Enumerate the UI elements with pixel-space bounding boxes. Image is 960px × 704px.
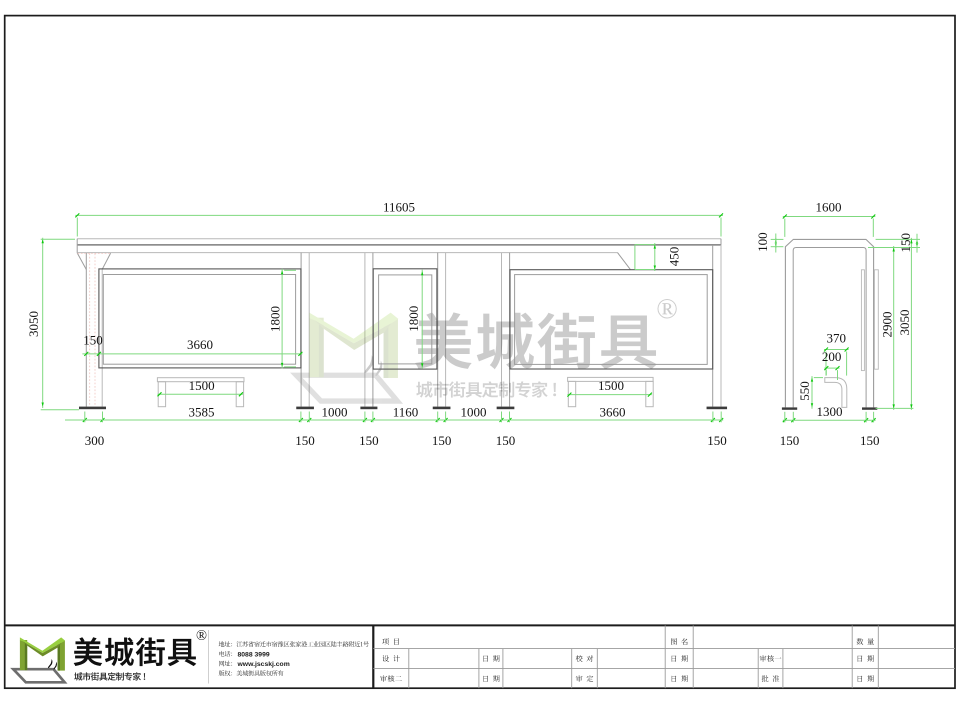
svg-text:450: 450 [667,247,682,267]
svg-text:150: 150 [496,433,516,448]
svg-text:11605: 11605 [383,200,415,215]
svg-text:1300: 1300 [817,404,843,419]
svg-text:100: 100 [755,232,770,252]
svg-text:3660: 3660 [187,337,213,352]
svg-text:2900: 2900 [879,312,894,338]
svg-text:3050: 3050 [897,310,912,336]
svg-text:1160: 1160 [393,405,419,420]
svg-text:150: 150 [295,433,315,448]
svg-text:®: ® [656,294,678,325]
svg-text:1000: 1000 [461,405,487,420]
svg-text:www.jscskj.com: www.jscskj.com [237,661,290,668]
svg-text:1000: 1000 [322,405,348,420]
svg-text:1500: 1500 [598,378,624,393]
svg-text:200: 200 [822,349,842,364]
svg-text:®: ® [196,628,207,644]
svg-text:8088 3999: 8088 3999 [238,651,270,658]
svg-text:1600: 1600 [816,200,842,215]
svg-text:370: 370 [826,330,846,345]
svg-text:1800: 1800 [267,306,282,332]
svg-text:150: 150 [780,433,800,448]
svg-text:1800: 1800 [406,306,421,332]
svg-text:150: 150 [432,433,452,448]
svg-text:150: 150 [359,433,379,448]
svg-text:550: 550 [797,381,812,401]
svg-text:150: 150 [83,333,103,348]
svg-text:300: 300 [85,433,105,448]
svg-text:3585: 3585 [189,405,215,420]
svg-text:3050: 3050 [26,311,41,337]
svg-text:150: 150 [707,433,727,448]
svg-text:150: 150 [860,433,880,448]
svg-text:3660: 3660 [600,405,626,420]
svg-text:1500: 1500 [189,378,215,393]
